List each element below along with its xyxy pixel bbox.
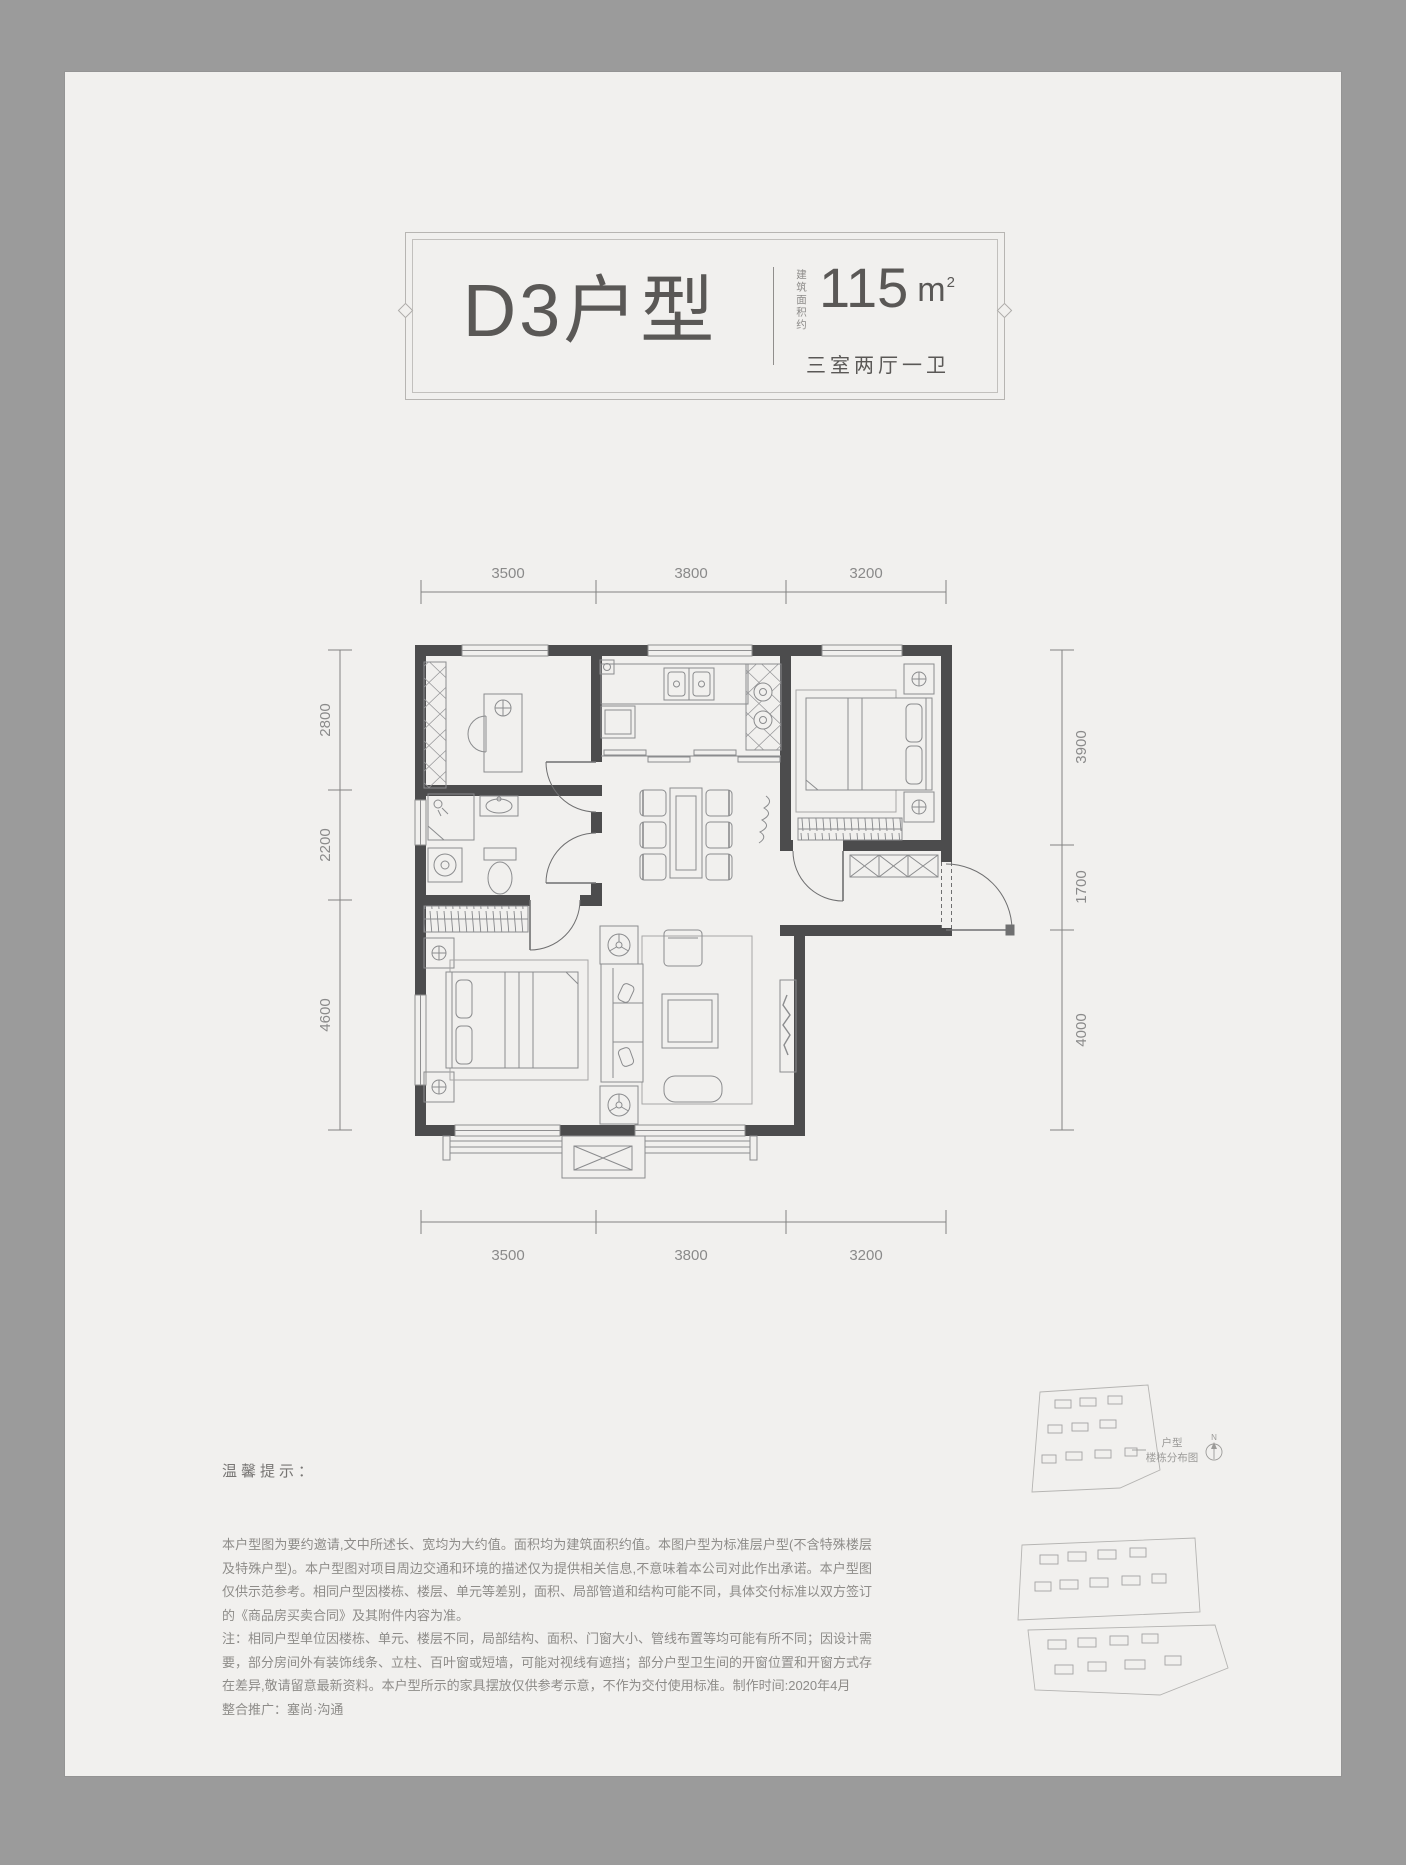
furniture-master-bedroom (424, 906, 588, 1102)
brochure-page: D3户型 建筑面积约 115 m2 三室两厅一卫 (0, 0, 1406, 1865)
entry-door (941, 862, 1014, 935)
notes-heading: 温馨提示： (222, 1460, 872, 1481)
dim-right-2: 1700 (1073, 870, 1090, 903)
dim-top: 3500 3800 3200 (421, 565, 946, 604)
site-plan-label-line1: 户型 (1162, 1436, 1183, 1449)
furniture (424, 660, 938, 1178)
site-plan: 户型 楼栋分布图 N (1018, 1385, 1228, 1695)
compass-icon: N (1206, 1433, 1222, 1460)
dim-left-2: 2200 (317, 828, 334, 861)
dining-wall-decor (759, 796, 770, 843)
dim-right-1: 3900 (1073, 730, 1090, 763)
tv-icon (783, 995, 790, 1055)
furniture-kitchen (600, 660, 781, 762)
furniture-study (424, 662, 522, 788)
dim-top-3: 3200 (849, 565, 882, 582)
dim-bottom-3: 3200 (849, 1247, 882, 1264)
site-plan-label-line2: 楼栋分布图 (1146, 1451, 1199, 1464)
notes-block: 温馨提示： 本户型图为要约邀请,文中所述长、宽均为大约值。面积均为建筑面积约值。… (222, 1460, 872, 1721)
dim-bottom: 3500 3800 3200 (421, 1210, 946, 1264)
furniture-entry-cabinet (850, 855, 938, 877)
compass-n-label: N (1211, 1433, 1217, 1442)
notes-paragraph-1: 本户型图为要约邀请,文中所述长、宽均为大约值。面积均为建筑面积约值。本图户型为标… (222, 1533, 872, 1627)
site-buildings (1035, 1396, 1181, 1674)
furniture-living (600, 926, 796, 1124)
dim-bottom-1: 3500 (491, 1247, 524, 1264)
bath-door (546, 833, 596, 883)
dim-right-3: 4000 (1073, 1013, 1090, 1046)
notes-paragraph-2: 注：相同户型单位因楼栋、单元、楼层不同，局部结构、面积、门窗大小、管线布置等均可… (222, 1627, 872, 1698)
bedroom2-door (793, 851, 843, 901)
master-bedroom-door (530, 900, 580, 950)
paper-sheet: D3户型 建筑面积约 115 m2 三室两厅一卫 (65, 72, 1341, 1776)
dim-bottom-2: 3800 (674, 1247, 707, 1264)
dim-left-3: 4600 (317, 998, 334, 1031)
balcony (443, 1136, 757, 1178)
dim-right: 3900 1700 4000 (1050, 650, 1090, 1130)
dim-left-1: 2800 (317, 703, 334, 736)
notes-paragraph-3: 整合推广：塞尚·沟通 (222, 1698, 872, 1722)
dim-top-2: 3800 (674, 565, 707, 582)
furniture-dining (640, 788, 770, 880)
notes-body: 本户型图为要约邀请,文中所述长、宽均为大约值。面积均为建筑面积约值。本图户型为标… (222, 1533, 872, 1721)
dim-top-1: 3500 (491, 565, 524, 582)
dim-left: 2800 2200 4600 (317, 650, 352, 1130)
furniture-bathroom (428, 794, 518, 894)
furniture-bedroom2 (796, 664, 934, 840)
